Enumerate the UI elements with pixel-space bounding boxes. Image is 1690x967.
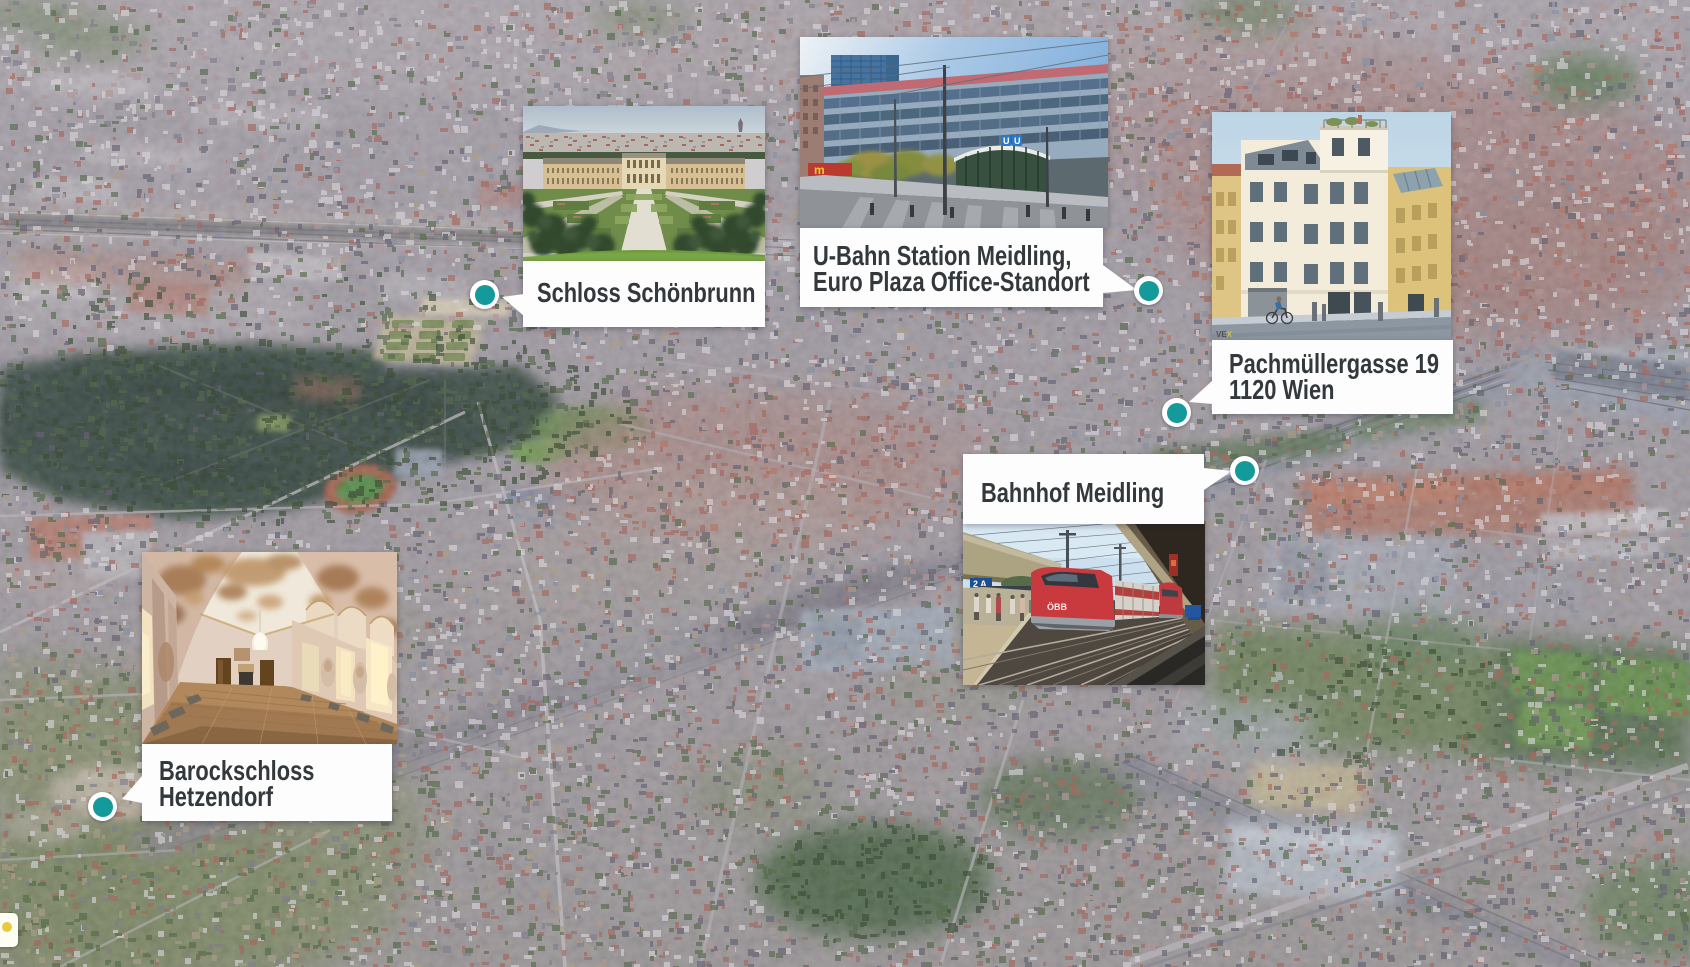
svg-text:U: U [1014, 136, 1021, 146]
svg-text:VEX: VEX [1216, 330, 1233, 339]
svg-text:U: U [1003, 136, 1010, 146]
svg-text:ÖBB: ÖBB [1047, 602, 1068, 612]
svg-text:m: m [814, 163, 825, 177]
